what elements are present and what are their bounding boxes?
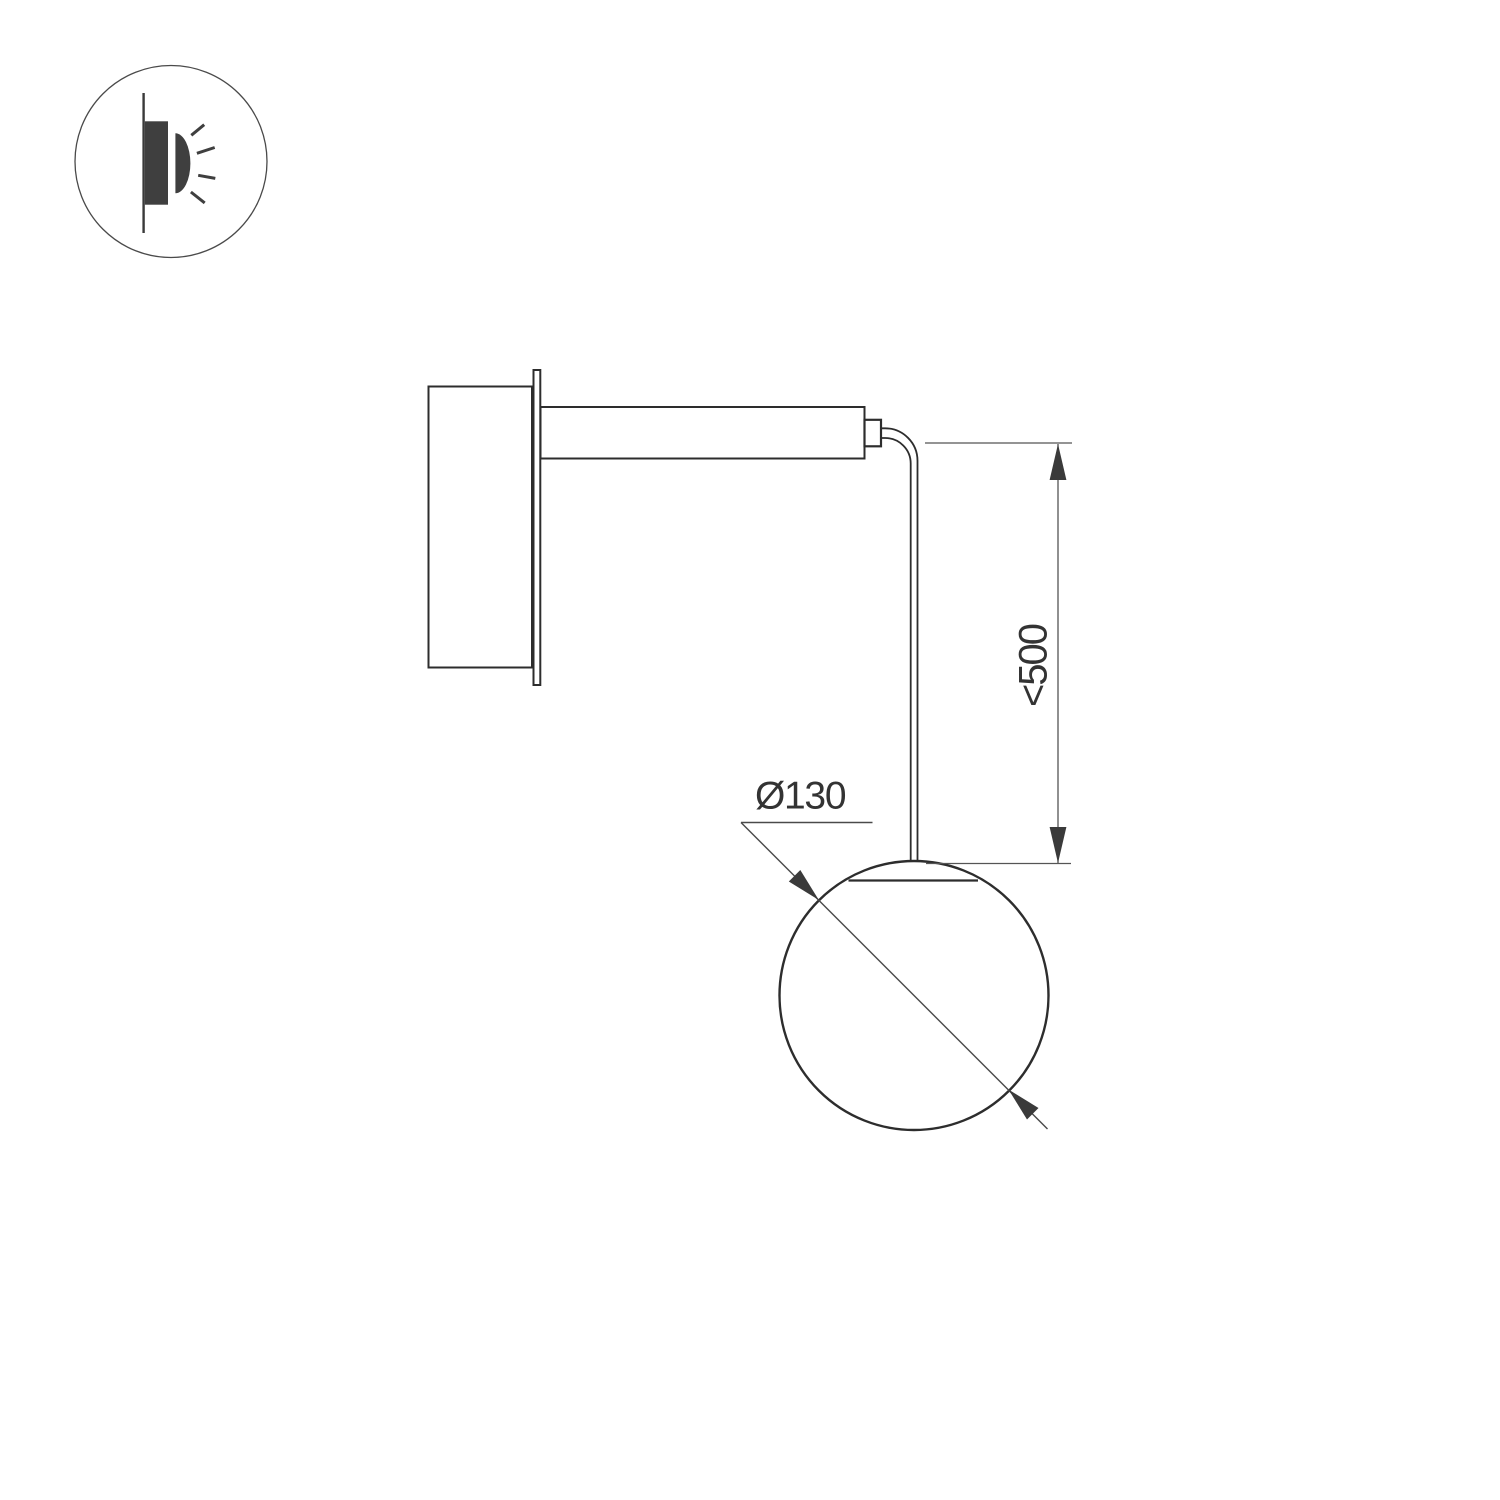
svg-text:<500: <500 [1012, 624, 1056, 707]
svg-text:Ø130: Ø130 [755, 775, 846, 818]
